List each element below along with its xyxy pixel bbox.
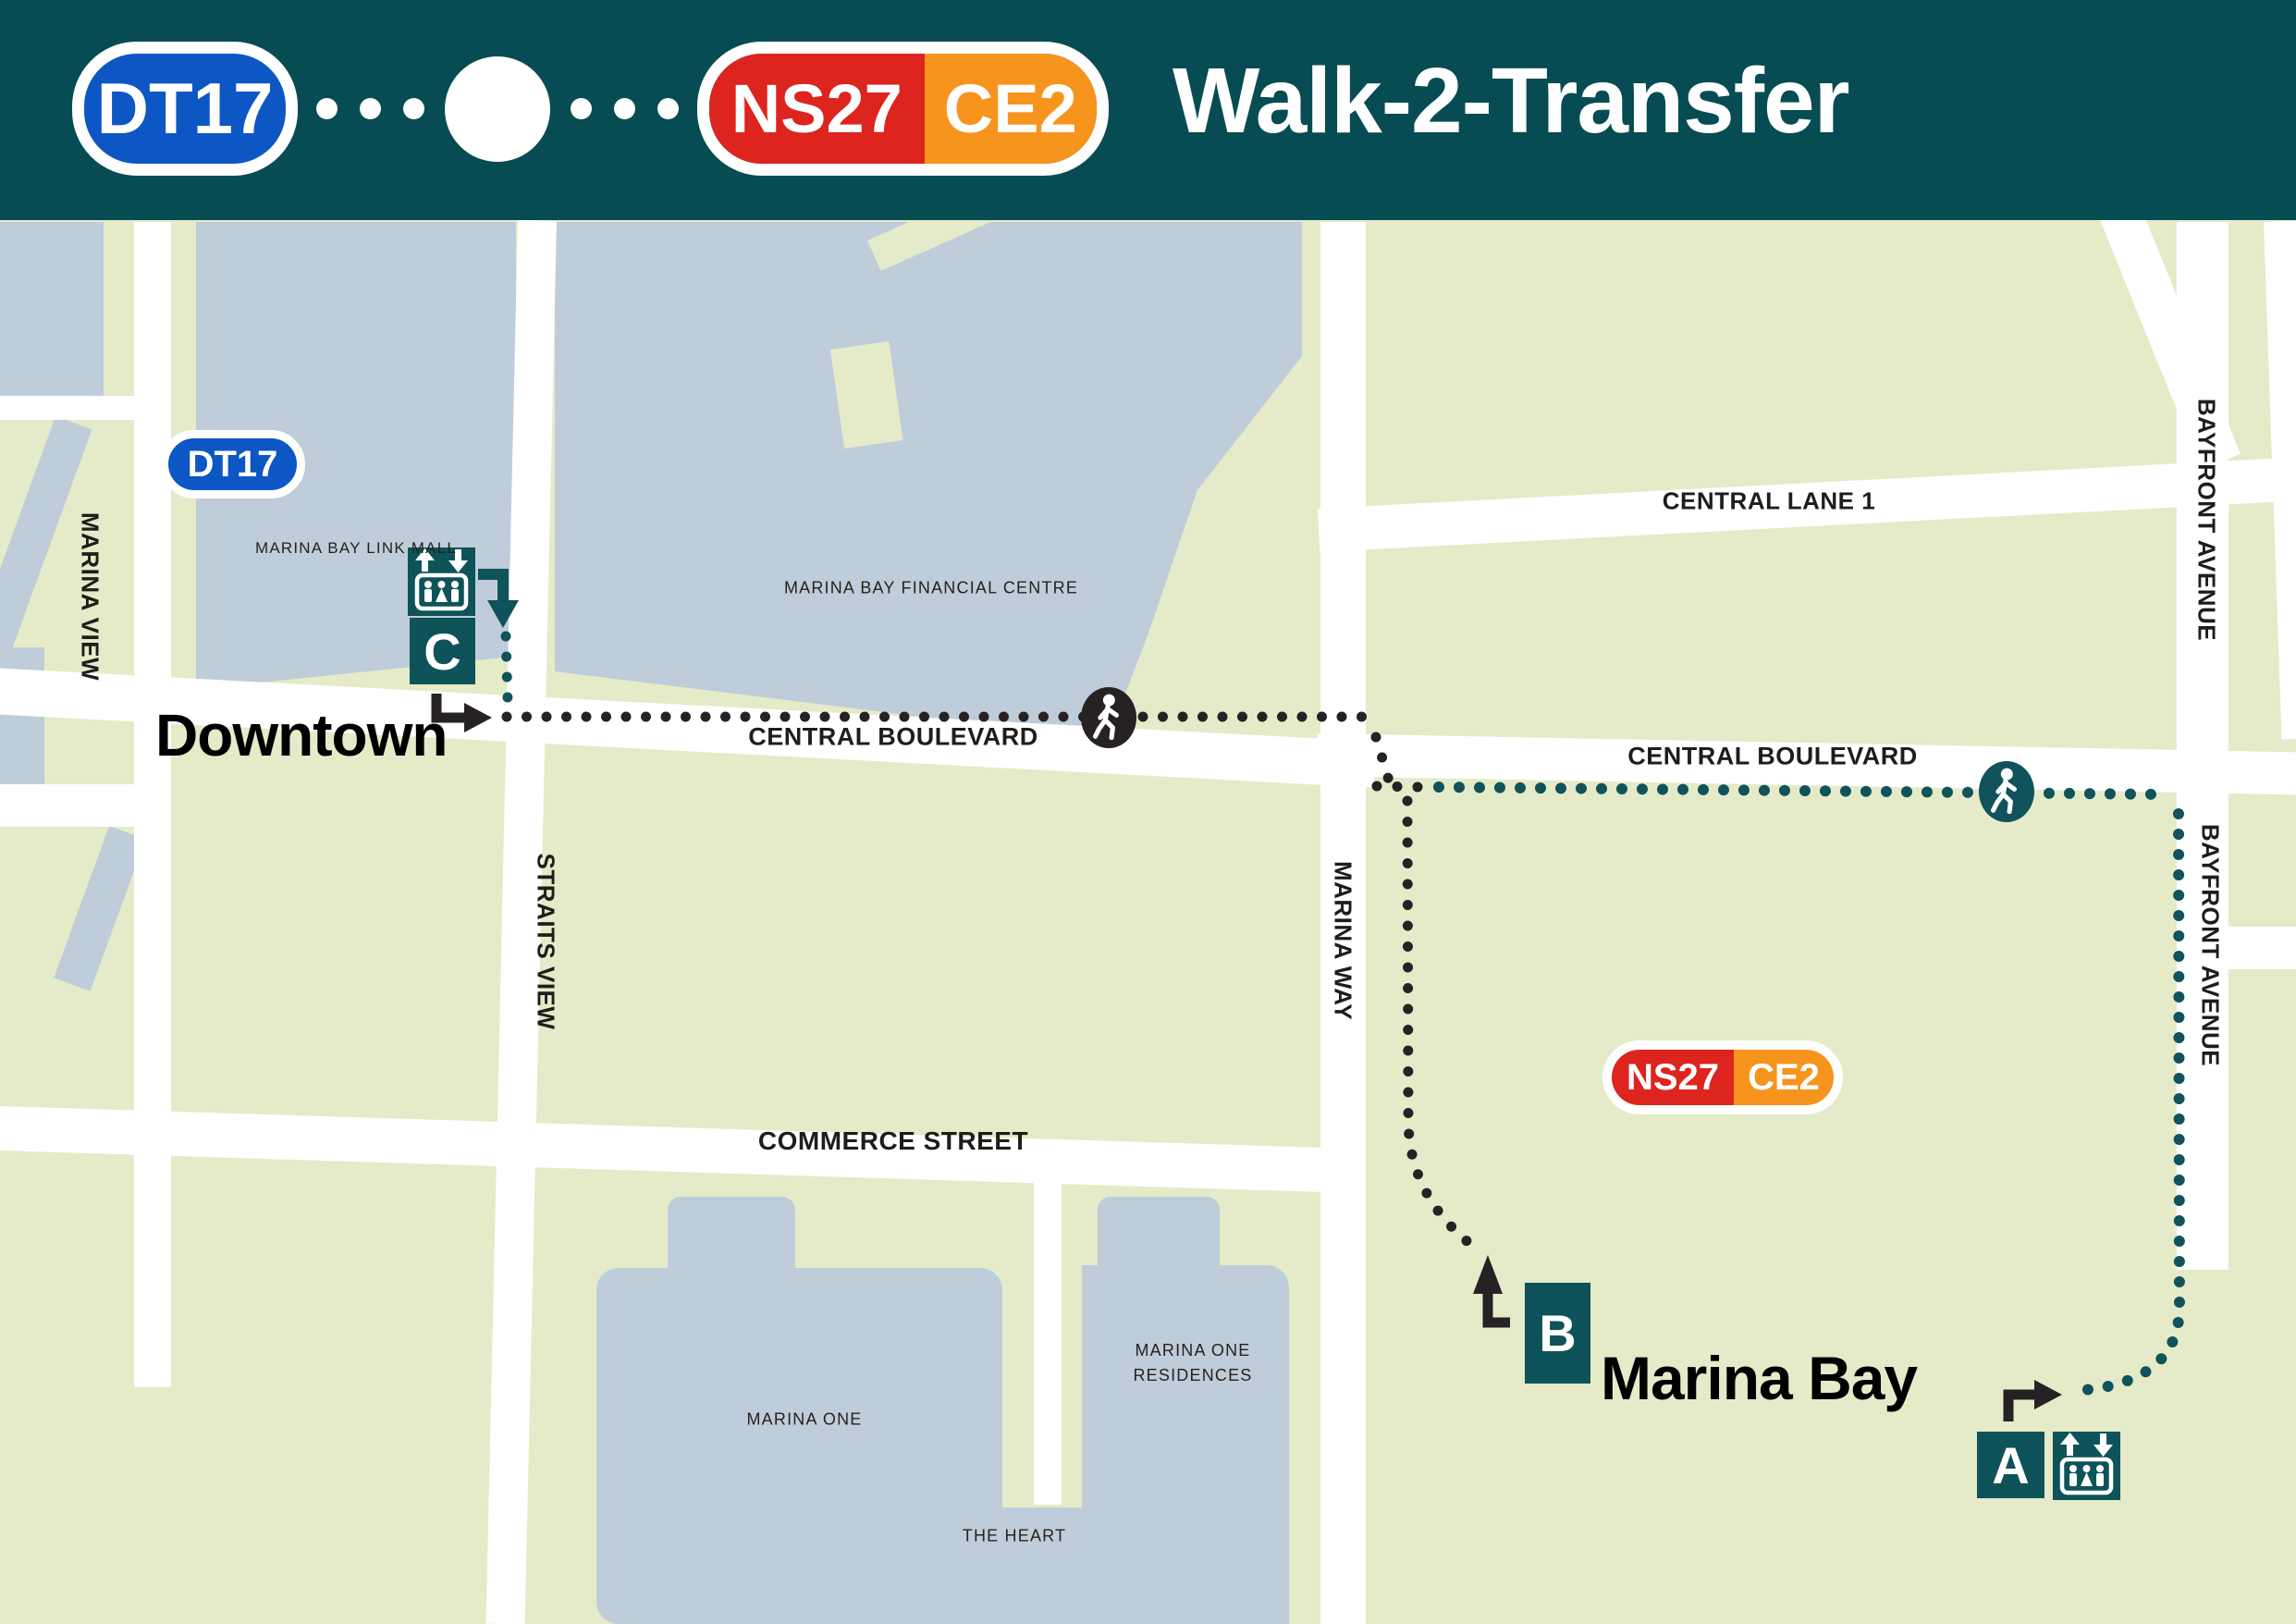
header-dots-left <box>316 98 424 119</box>
exit-b-letter: B <box>1539 1303 1576 1363</box>
street-marina-view <box>134 222 171 1387</box>
label-marina-bay-link-mall: MARINA BAY LINK MALL <box>255 539 457 558</box>
street-side-left-upper <box>0 396 136 420</box>
badge-dt17-text: DT17 <box>188 444 278 486</box>
label-bayfront-avenue-2: BAYFRONT AVENUE <box>2196 824 2225 1066</box>
street-side-left-lower <box>0 784 136 827</box>
map-canvas <box>0 220 2296 1624</box>
building-wedge-left-2 <box>54 826 145 991</box>
header-dots-right <box>571 98 679 119</box>
header-ns27-half: NS27 <box>709 54 925 164</box>
header-ns27-text: NS27 <box>731 69 902 148</box>
label-commerce-street: COMMERCE STREET <box>758 1126 1028 1156</box>
badge-ns27-half: NS27 <box>1612 1050 1734 1105</box>
header-badge-ns27-ce2: NS27 CE2 <box>697 42 1109 176</box>
building-heart-merge <box>832 1507 1289 1624</box>
exit-a-letter: A <box>1992 1435 2029 1495</box>
label-marina-one: MARINA ONE <box>746 1410 862 1430</box>
label-marina-bay-financial-centre: MARINA BAY FINANCIAL CENTRE <box>784 579 1078 598</box>
label-the-heart: THE HEART <box>963 1527 1066 1546</box>
building-block-top-left <box>0 222 104 398</box>
badge-ce2-text: CE2 <box>1748 1057 1820 1099</box>
label-bayfront-avenue-1: BAYFRONT AVENUE <box>2192 399 2221 641</box>
dot <box>316 98 338 119</box>
dot <box>657 98 679 119</box>
walk-2-transfer-map: CENTRAL LANE 1 BAYFRONT AVENUE BAYFRONT … <box>0 0 2296 1624</box>
label-marina-one-residences: MARINA ONE RESIDENCES <box>1133 1338 1252 1388</box>
exit-b-square: B <box>1525 1283 1590 1384</box>
label-central-boulevard-west: CENTRAL BOULEVARD <box>748 723 1038 752</box>
station-name-marina-bay: Marina Bay <box>1601 1343 1917 1413</box>
label-central-lane-1: CENTRAL LANE 1 <box>1663 487 1875 516</box>
label-central-boulevard-east: CENTRAL BOULEVARD <box>1627 743 1918 771</box>
label-marina-way: MARINA WAY <box>1329 861 1357 1020</box>
badge-ce2-half: CE2 <box>1734 1050 1834 1105</box>
badge-ns27-text: NS27 <box>1627 1057 1719 1099</box>
station-name-downtown: Downtown <box>155 701 447 769</box>
header-ce2-half: CE2 <box>925 54 1097 164</box>
dot <box>403 98 424 119</box>
exit-c-letter: C <box>424 621 460 682</box>
station-badge-dt17: DT17 <box>160 430 305 498</box>
exit-c-square: C <box>410 618 475 684</box>
building-marina-bay-financial-centre <box>555 222 1304 745</box>
dot <box>614 98 635 119</box>
header-dt17-text: DT17 <box>97 67 274 151</box>
label-straits-view: STRAITS VIEW <box>532 854 560 1030</box>
dot <box>571 98 592 119</box>
residences-line2: RESIDENCES <box>1133 1366 1252 1384</box>
label-marina-view: MARINA VIEW <box>76 512 104 681</box>
street-connector-marina-one <box>1034 1161 1062 1505</box>
header-ce2-text: CE2 <box>944 69 1077 148</box>
header-walker-slot <box>445 56 550 162</box>
page-title: Walk-2-Transfer <box>1173 48 1849 154</box>
header-bar: DT17 NS27 CE2 Walk-2-Tran <box>0 0 2296 220</box>
residences-line1: MARINA ONE <box>1135 1341 1250 1359</box>
station-badge-ns27-ce2: NS27 CE2 <box>1602 1040 1843 1114</box>
header-badge-dt17: DT17 <box>72 42 298 176</box>
dot <box>360 98 381 119</box>
exit-a-square: A <box>1977 1432 2044 1498</box>
street-commerce <box>0 1106 1340 1193</box>
